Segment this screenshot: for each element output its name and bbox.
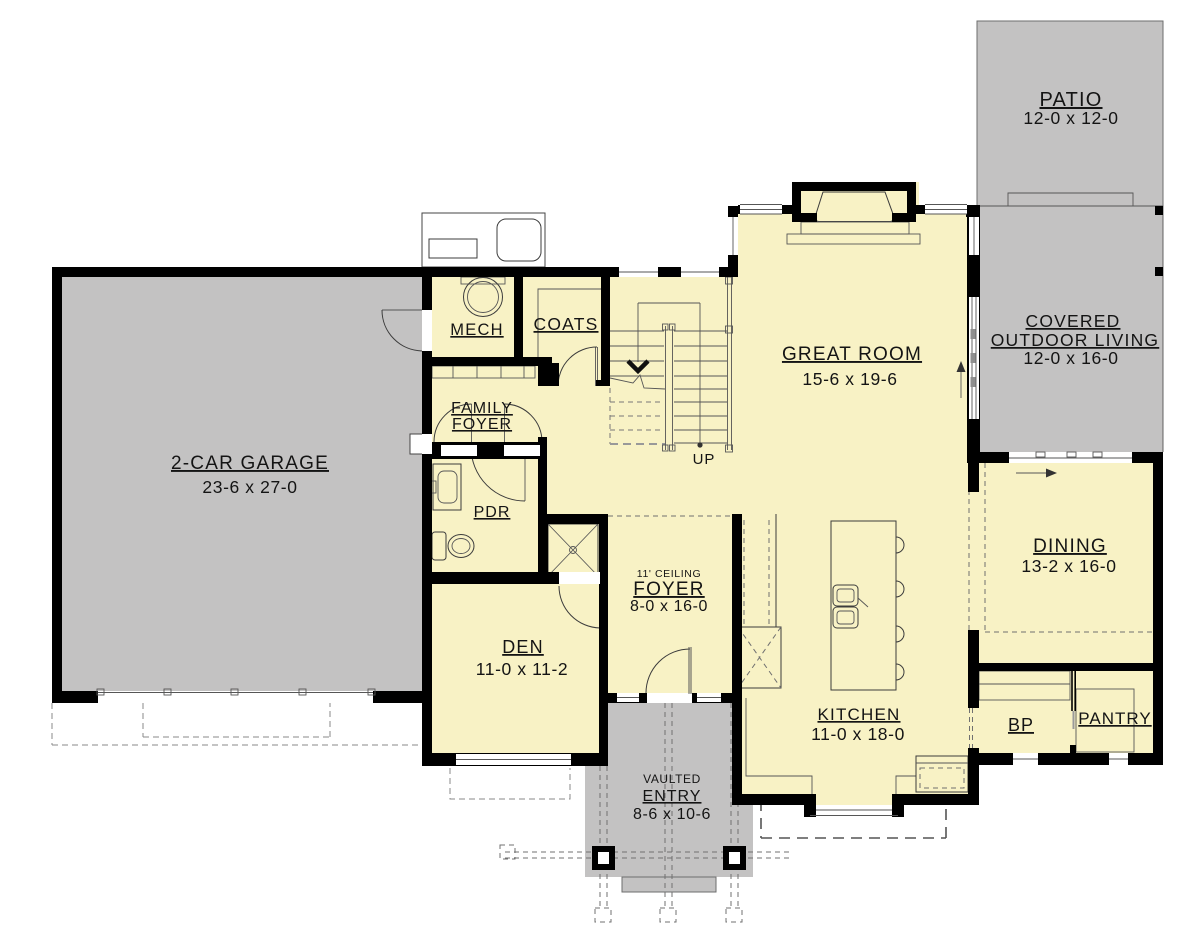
svg-text:13-2 x 16-0: 13-2 x 16-0 <box>1021 556 1116 576</box>
svg-text:MECH: MECH <box>450 321 503 339</box>
svg-text:DEN: DEN <box>502 637 544 657</box>
svg-text:COVERED: COVERED <box>1026 311 1121 331</box>
svg-text:8-0 x 16-0: 8-0 x 16-0 <box>630 598 708 615</box>
svg-text:ENTRY: ENTRY <box>643 788 702 805</box>
svg-text:DINING: DINING <box>1033 536 1107 557</box>
svg-text:8-6 x 10-6: 8-6 x 10-6 <box>633 806 711 823</box>
svg-text:FOYER: FOYER <box>452 416 512 433</box>
svg-text:GREAT ROOM: GREAT ROOM <box>782 344 922 365</box>
svg-text:PDR: PDR <box>474 504 511 521</box>
svg-text:BP: BP <box>1008 715 1034 735</box>
svg-text:15-6 x 19-6: 15-6 x 19-6 <box>802 369 897 389</box>
svg-text:FAMILY: FAMILY <box>451 400 513 417</box>
svg-text:OUTDOOR LIVING: OUTDOOR LIVING <box>991 330 1159 350</box>
svg-text:11-0 x 11-2: 11-0 x 11-2 <box>476 659 569 679</box>
svg-text:COATS: COATS <box>534 314 599 334</box>
svg-text:12-0 x 16-0: 12-0 x 16-0 <box>1023 348 1118 368</box>
svg-text:2-CAR GARAGE: 2-CAR GARAGE <box>171 453 329 474</box>
svg-text:23-6 x 27-0: 23-6 x 27-0 <box>202 477 297 497</box>
svg-text:11-0 x 18-0: 11-0 x 18-0 <box>811 724 905 744</box>
svg-text:12-0 x 12-0: 12-0 x 12-0 <box>1023 108 1118 128</box>
svg-text:VAULTED: VAULTED <box>643 772 701 786</box>
svg-text:UP: UP <box>693 451 716 468</box>
svg-text:FOYER: FOYER <box>633 579 704 600</box>
svg-text:KITCHEN: KITCHEN <box>817 705 900 724</box>
svg-text:PANTRY: PANTRY <box>1078 709 1151 728</box>
